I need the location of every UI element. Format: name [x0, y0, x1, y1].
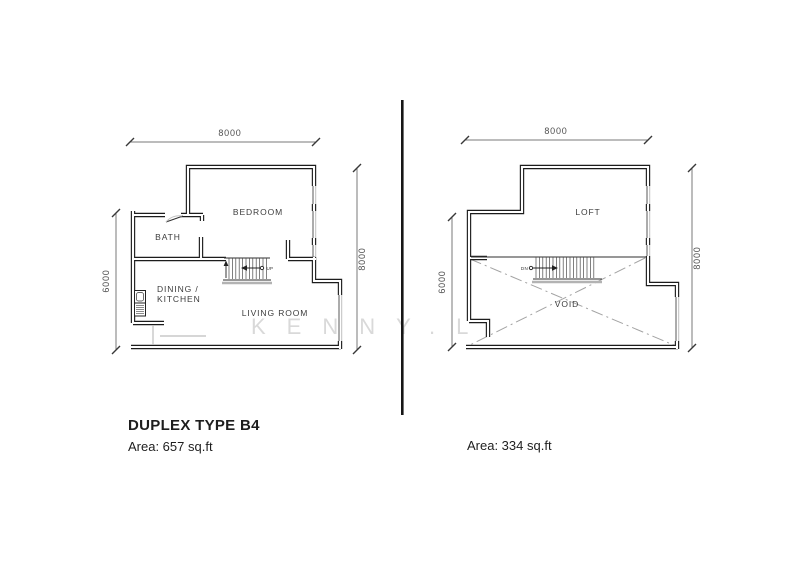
stairs-up-label: UP: [267, 266, 274, 271]
entry-door-lines: [153, 325, 206, 345]
stairs-dn-label: DN: [521, 266, 528, 271]
window-lines-upper: [647, 186, 676, 341]
stairs-lower: UP: [222, 258, 273, 283]
room-label-dining-line2: KITCHEN: [157, 294, 201, 304]
kitchen-fixtures: [135, 291, 146, 317]
floorplan-canvas: KENNY.L UP: [0, 0, 800, 566]
stairs-treads: [536, 257, 594, 278]
area-label-lower: Area: 657 sq.ft: [128, 439, 213, 454]
area-label-upper: Area: 334 sq.ft: [467, 438, 552, 453]
room-label-bedroom: BEDROOM: [233, 207, 283, 217]
stairs-node: [260, 266, 263, 269]
room-label-dining-line1: DINING /: [157, 284, 199, 294]
plan-title: DUPLEX TYPE B4: [128, 417, 260, 434]
window-glass-upper: [650, 186, 679, 341]
stairs-direction-line: [226, 263, 262, 278]
room-label-loft: LOFT: [575, 207, 600, 217]
room-label-bath: BATH: [155, 232, 181, 242]
dim-left-upper: 6000: [437, 270, 447, 293]
dim-top-lower: 8000: [218, 128, 241, 138]
kitchen-sink-basin: [136, 293, 143, 301]
divider-line: [401, 100, 404, 415]
dim-left-lower: 6000: [101, 269, 111, 292]
room-label-living-room: LIVING ROOM: [242, 308, 309, 318]
walls-upper-outer: [466, 167, 678, 349]
floorplan-drawing: KENNY.L UP: [0, 0, 800, 566]
stairs-arrowhead-icon: [241, 265, 247, 271]
stairs-upper: DN: [521, 257, 602, 282]
dim-top-upper: 8000: [544, 126, 567, 136]
room-label-void: VOID: [555, 299, 579, 309]
stairs-start-arrow-icon: [224, 261, 229, 267]
stairs-arrowhead-icon: [552, 265, 558, 271]
stairs-node: [529, 266, 532, 269]
dim-right-upper: 8000: [692, 246, 702, 269]
dim-right-lower: 8000: [357, 247, 367, 270]
